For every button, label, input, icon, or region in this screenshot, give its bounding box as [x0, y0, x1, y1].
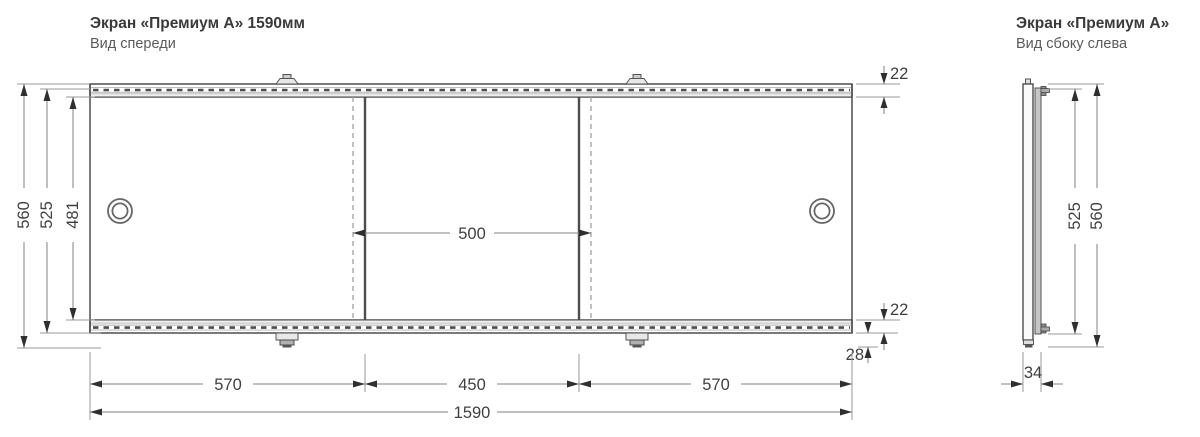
side-dim-frame-height: 525	[1048, 89, 1084, 334]
top-rail-shadow	[91, 93, 851, 97]
dim-total-width: 1590	[90, 404, 852, 422]
dim-label-525: 525	[38, 201, 56, 229]
side-frame-bar	[1023, 84, 1033, 340]
dim-label-top-22: 22	[890, 65, 908, 83]
dim-label-28: 28	[846, 346, 864, 364]
side-dim-label-34: 34	[1024, 364, 1042, 382]
dim-total-height: 560	[15, 84, 101, 348]
dim-middle-section: 450	[365, 376, 579, 394]
dim-label-560: 560	[15, 201, 33, 229]
top-clip-right	[626, 75, 648, 85]
dim-right-section: 570	[579, 376, 852, 394]
side-dim-depth: 34	[1001, 352, 1063, 392]
bottom-rail-shadow	[91, 321, 851, 325]
dim-left-section: 570	[90, 376, 365, 394]
side-bottom-bracket-tab	[1041, 327, 1050, 331]
side-dim-label-525: 525	[1066, 202, 1084, 230]
dim-label-500: 500	[458, 225, 486, 243]
dim-top-rail: 22	[856, 65, 908, 114]
side-profile	[1023, 79, 1050, 348]
side-panel-bar	[1035, 88, 1041, 334]
top-clip-left	[276, 75, 298, 85]
drawing-svg: 560 525 481	[0, 0, 1200, 437]
screen-body	[90, 84, 852, 347]
side-view: 525 560 34	[1001, 79, 1106, 392]
side-foot-plate	[1024, 340, 1034, 345]
dim-bottom-rail: 22	[856, 301, 908, 350]
dim-label-570-left: 570	[214, 376, 242, 394]
side-dim-label-560: 560	[1088, 202, 1106, 230]
dim-label-1590: 1590	[454, 404, 491, 422]
dim-label-481: 481	[64, 201, 82, 229]
front-view: 560 525 481	[15, 65, 908, 422]
dim-label-bottom-22: 22	[890, 301, 908, 319]
dim-label-570-right: 570	[702, 376, 730, 394]
technical-drawing-page: Экран «Премиум А» 1590мм Вид спереди Экр…	[0, 0, 1200, 437]
dim-label-450: 450	[458, 376, 486, 394]
side-foot-base	[1025, 345, 1033, 348]
